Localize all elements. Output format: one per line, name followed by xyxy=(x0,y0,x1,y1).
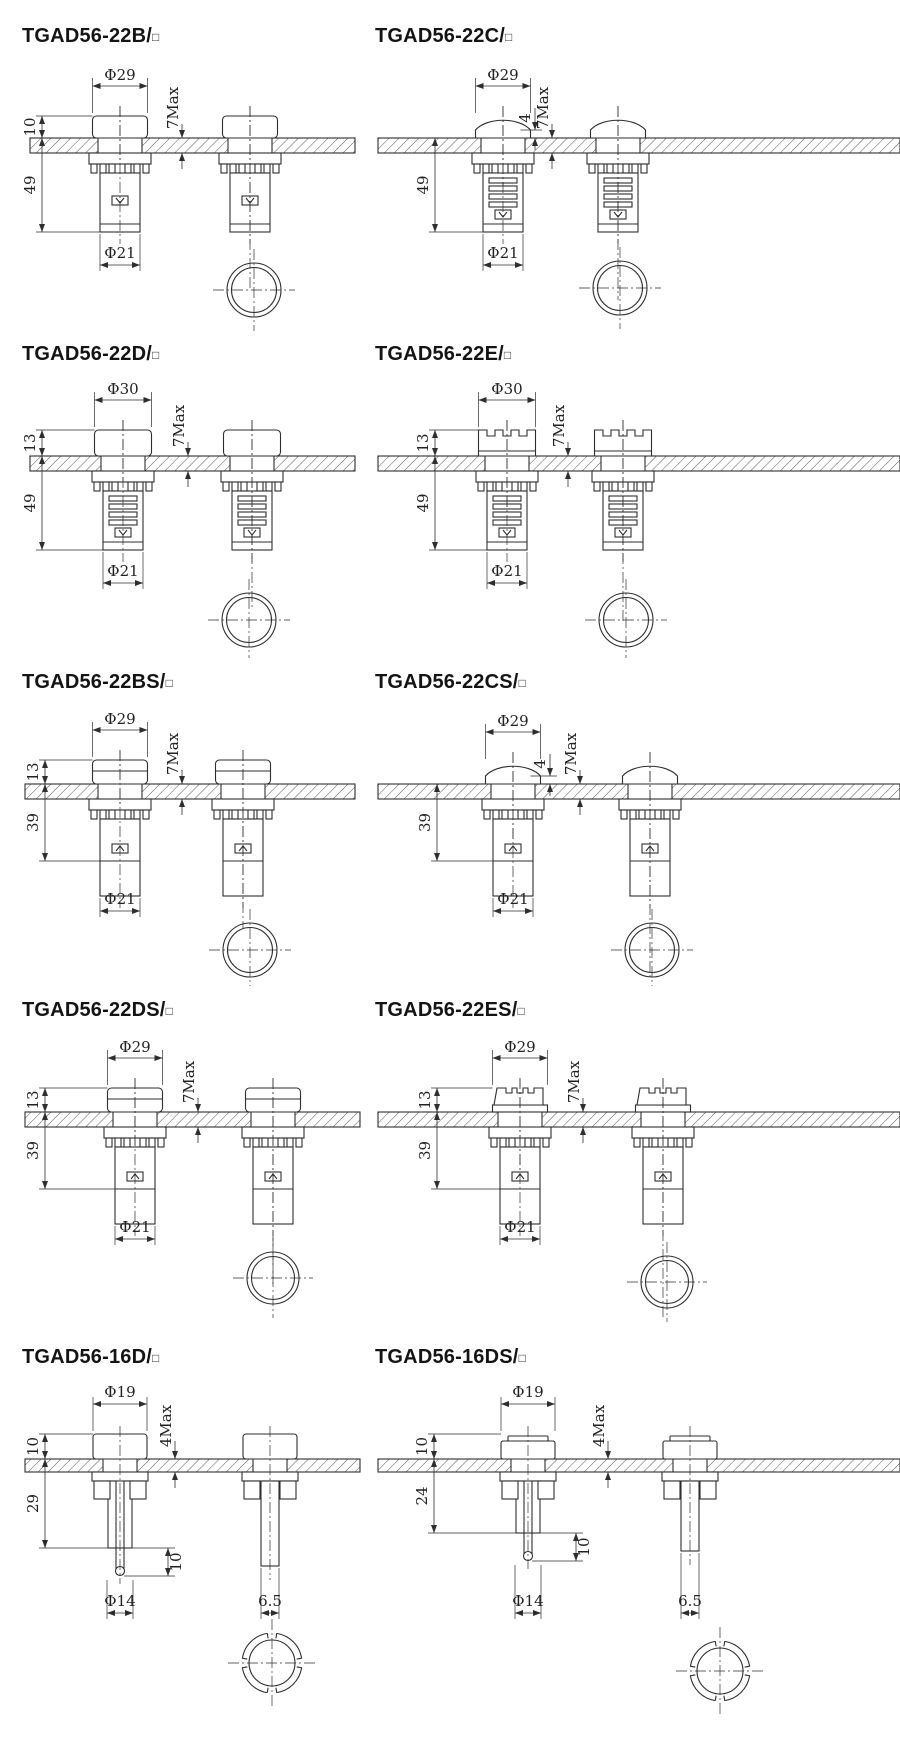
dimensions: Φ19102910Φ144Max6.5 xyxy=(24,1383,282,1619)
dim-label: 10 xyxy=(413,1437,431,1456)
model-title: TGAD56-16DS/□ xyxy=(368,1345,900,1371)
section-view: Φ3013497MaxΦ21 xyxy=(21,380,355,610)
dim-label: 49 xyxy=(414,175,432,194)
bottom-view xyxy=(611,909,693,986)
dim-label: Φ30 xyxy=(491,380,522,398)
dim-label: Φ29 xyxy=(504,1038,535,1056)
dim-label: Φ19 xyxy=(512,1383,543,1401)
dim-label: 49 xyxy=(21,175,39,194)
lamp-view xyxy=(482,752,544,908)
dim-label: Φ14 xyxy=(512,1592,543,1610)
catalog-page: TGAD56-22B/□ Φ2910497MaxΦ21 TGAD56-22C/□… xyxy=(0,0,900,1763)
dim-label: 39 xyxy=(24,813,42,832)
dim-label: 39 xyxy=(24,1141,42,1160)
panel-tgad56-22b: TGAD56-22B/□ Φ2910497MaxΦ21 xyxy=(10,24,366,340)
drawing-tgad56-22es: Φ2913397MaxΦ21 xyxy=(368,1024,900,1334)
bottom-view xyxy=(213,249,295,331)
lamp-view xyxy=(500,1426,556,1569)
lamp-view xyxy=(489,1078,551,1236)
dim-label: 13 xyxy=(24,762,42,781)
mounting-panel xyxy=(25,784,355,799)
lamp-view xyxy=(472,106,534,244)
section-view: Φ2913397MaxΦ21 xyxy=(24,1038,360,1287)
dim-label: Φ29 xyxy=(104,710,135,728)
model-number: TGAD56-22DS/ xyxy=(22,999,166,1021)
drawing-tgad56-16ds: Φ19102410Φ144Max6.5 xyxy=(368,1371,900,1763)
dim-label: 29 xyxy=(24,1494,42,1513)
dim-label: 4Max xyxy=(590,1404,608,1447)
lamp-view xyxy=(89,106,151,244)
section-view: Φ293947MaxΦ21 xyxy=(378,712,900,978)
dimensions: Φ19102410Φ144Max6.5 xyxy=(413,1383,702,1619)
drawing-tgad56-22d: Φ3013497MaxΦ21 xyxy=(10,368,366,658)
model-number: TGAD56-22BS/ xyxy=(22,671,166,693)
model-number: TGAD56-16DS/ xyxy=(375,1346,519,1368)
dim-label: 6.5 xyxy=(678,1592,702,1610)
dim-label: Φ29 xyxy=(119,1038,150,1056)
dim-label: 4 xyxy=(516,113,534,123)
dim-label: Φ21 xyxy=(107,562,138,580)
lamp-view xyxy=(587,106,649,300)
dim-label: Φ21 xyxy=(104,890,135,908)
mounting-panel xyxy=(378,1459,900,1472)
lamp-view xyxy=(242,1426,298,1580)
section-view: Φ2910497MaxΦ21 xyxy=(21,66,355,290)
drawing-tgad56-22e: Φ3013497MaxΦ21 xyxy=(368,368,900,658)
model-number: TGAD56-22E/ xyxy=(375,343,504,365)
dim-label: Φ21 xyxy=(104,244,135,262)
dim-label: 13 xyxy=(21,433,39,452)
variant-box: □ xyxy=(519,1351,526,1365)
model-number: TGAD56-22D/ xyxy=(22,343,152,365)
mounting-panel xyxy=(25,1459,360,1472)
bottom-view xyxy=(579,247,661,329)
dim-label: 7Max xyxy=(170,404,188,447)
dim-label: 13 xyxy=(416,1090,434,1109)
dim-label: 7Max xyxy=(180,1060,198,1103)
dim-label: 24 xyxy=(413,1486,431,1505)
drawing-tgad56-16d: Φ19102910Φ144Max6.5 xyxy=(10,1371,366,1763)
drawing-tgad56-22b: Φ2910497MaxΦ21 xyxy=(10,50,366,340)
lamp-view xyxy=(221,420,283,610)
section-view: Φ2913397MaxΦ21 xyxy=(24,710,355,929)
panel-tgad56-22e: TGAD56-22E/□ Φ3013497MaxΦ21 xyxy=(368,342,900,658)
panel-tgad56-22d: TGAD56-22D/□ Φ3013497MaxΦ21 xyxy=(10,342,366,658)
section-view: Φ19102910Φ144Max6.5 xyxy=(24,1383,360,1619)
variant-box: □ xyxy=(166,1004,173,1018)
panel-tgad56-22ds: TGAD56-22DS/□ Φ2913397MaxΦ21 xyxy=(10,998,366,1334)
dim-label: 7Max xyxy=(562,732,580,775)
dim-label: 39 xyxy=(416,813,434,832)
dim-label: Φ19 xyxy=(104,1383,135,1401)
dim-label: Φ21 xyxy=(487,244,518,262)
lamp-view xyxy=(662,1426,718,1565)
model-title: TGAD56-22ES/□ xyxy=(368,998,900,1024)
lamp-view xyxy=(592,420,654,623)
model-number: TGAD56-22B/ xyxy=(22,25,152,47)
bottom-view xyxy=(208,579,290,658)
model-number: TGAD56-16D/ xyxy=(22,1346,152,1368)
panel-tgad56-22es: TGAD56-22ES/□ Φ2913397MaxΦ21 xyxy=(368,998,900,1334)
dim-label: 10 xyxy=(21,117,39,136)
model-number: TGAD56-22C/ xyxy=(375,25,505,47)
dim-label: 7Max xyxy=(164,86,182,129)
dim-label: Φ14 xyxy=(104,1592,135,1610)
dim-label: Φ30 xyxy=(107,380,138,398)
dim-label: Φ29 xyxy=(487,66,518,84)
lamp-view xyxy=(104,1078,166,1236)
lamp-view xyxy=(92,420,154,562)
dim-label: Φ21 xyxy=(497,890,528,908)
variant-box: □ xyxy=(166,676,173,690)
section-view: Φ19102410Φ144Max6.5 xyxy=(378,1383,900,1619)
mounting-panel xyxy=(25,1112,360,1127)
lamp-view xyxy=(619,752,681,978)
dim-label: 49 xyxy=(414,493,432,512)
lamp-view xyxy=(92,1426,148,1584)
model-title: TGAD56-22D/□ xyxy=(10,342,366,368)
model-number: TGAD56-22ES/ xyxy=(375,999,517,1021)
dim-label: 13 xyxy=(24,1090,42,1109)
lamp-view xyxy=(219,106,281,290)
drawing-tgad56-22ds: Φ2913397MaxΦ21 xyxy=(10,1024,366,1334)
dim-label: 10 xyxy=(167,1552,185,1571)
dim-label: 49 xyxy=(21,493,39,512)
model-number: TGAD56-22CS/ xyxy=(375,671,519,693)
mounting-panel xyxy=(30,138,355,153)
section-view: Φ2913397MaxΦ21 xyxy=(378,1038,900,1319)
mounting-panel xyxy=(30,456,355,471)
model-title: TGAD56-22DS/□ xyxy=(10,998,366,1024)
variant-box: □ xyxy=(152,30,159,44)
bottom-view xyxy=(585,579,667,658)
lamp-view xyxy=(476,420,538,562)
model-title: TGAD56-22B/□ xyxy=(10,24,366,50)
dim-label: Φ21 xyxy=(119,1218,150,1236)
lamp-view xyxy=(242,1078,304,1287)
bottom-view xyxy=(676,1627,764,1715)
dim-label: Φ29 xyxy=(104,66,135,84)
drawing-tgad56-22bs: Φ2913397MaxΦ21 xyxy=(10,696,366,986)
section-view: Φ3013497MaxΦ21 xyxy=(378,380,900,623)
panel-tgad56-22cs: TGAD56-22CS/□ Φ293947MaxΦ21 xyxy=(368,670,900,986)
dim-label: Φ29 xyxy=(497,712,528,730)
panel-tgad56-22c: TGAD56-22C/□ Φ294947MaxΦ21 xyxy=(368,24,900,340)
panel-tgad56-22bs: TGAD56-22BS/□ Φ2913397MaxΦ21 xyxy=(10,670,366,986)
model-title: TGAD56-22C/□ xyxy=(368,24,900,50)
bottom-view xyxy=(209,909,291,986)
dim-label: 10 xyxy=(575,1537,593,1556)
drawing-tgad56-22c: Φ294947MaxΦ21 xyxy=(368,50,900,340)
dim-label: 7Max xyxy=(164,732,182,775)
section-view: Φ294947MaxΦ21 xyxy=(378,66,900,300)
dim-label: 7Max xyxy=(550,404,568,447)
model-title: TGAD56-22E/□ xyxy=(368,342,900,368)
panel-tgad56-16d: TGAD56-16D/□ Φ19102910Φ144Max6.5 xyxy=(10,1345,366,1763)
variant-box: □ xyxy=(152,348,159,362)
model-title: TGAD56-22BS/□ xyxy=(10,670,366,696)
bottom-view xyxy=(627,1242,707,1322)
variant-box: □ xyxy=(517,1004,524,1018)
lamp-view xyxy=(89,750,151,908)
dim-label: 7Max xyxy=(534,86,552,129)
panel-tgad56-16ds: TGAD56-16DS/□ Φ19102410Φ144Max6.5 xyxy=(368,1345,900,1763)
dim-label: 7Max xyxy=(565,1060,583,1103)
variant-box: □ xyxy=(504,348,511,362)
mounting-panel xyxy=(378,1112,900,1127)
dim-label: Φ21 xyxy=(491,562,522,580)
dim-label: 4Max xyxy=(157,1404,175,1447)
drawing-tgad56-22cs: Φ293947MaxΦ21 xyxy=(368,696,900,986)
variant-box: □ xyxy=(519,676,526,690)
variant-box: □ xyxy=(505,30,512,44)
lamp-view xyxy=(212,750,274,929)
dim-label: 13 xyxy=(414,433,432,452)
dim-label: 4 xyxy=(531,759,549,769)
variant-box: □ xyxy=(152,1351,159,1365)
model-title: TGAD56-16D/□ xyxy=(10,1345,366,1371)
dim-label: Φ21 xyxy=(504,1218,535,1236)
dim-label: 6.5 xyxy=(258,1592,282,1610)
dim-label: 10 xyxy=(24,1437,42,1456)
dim-label: 39 xyxy=(416,1141,434,1160)
model-title: TGAD56-22CS/□ xyxy=(368,670,900,696)
bottom-view xyxy=(228,1619,316,1707)
